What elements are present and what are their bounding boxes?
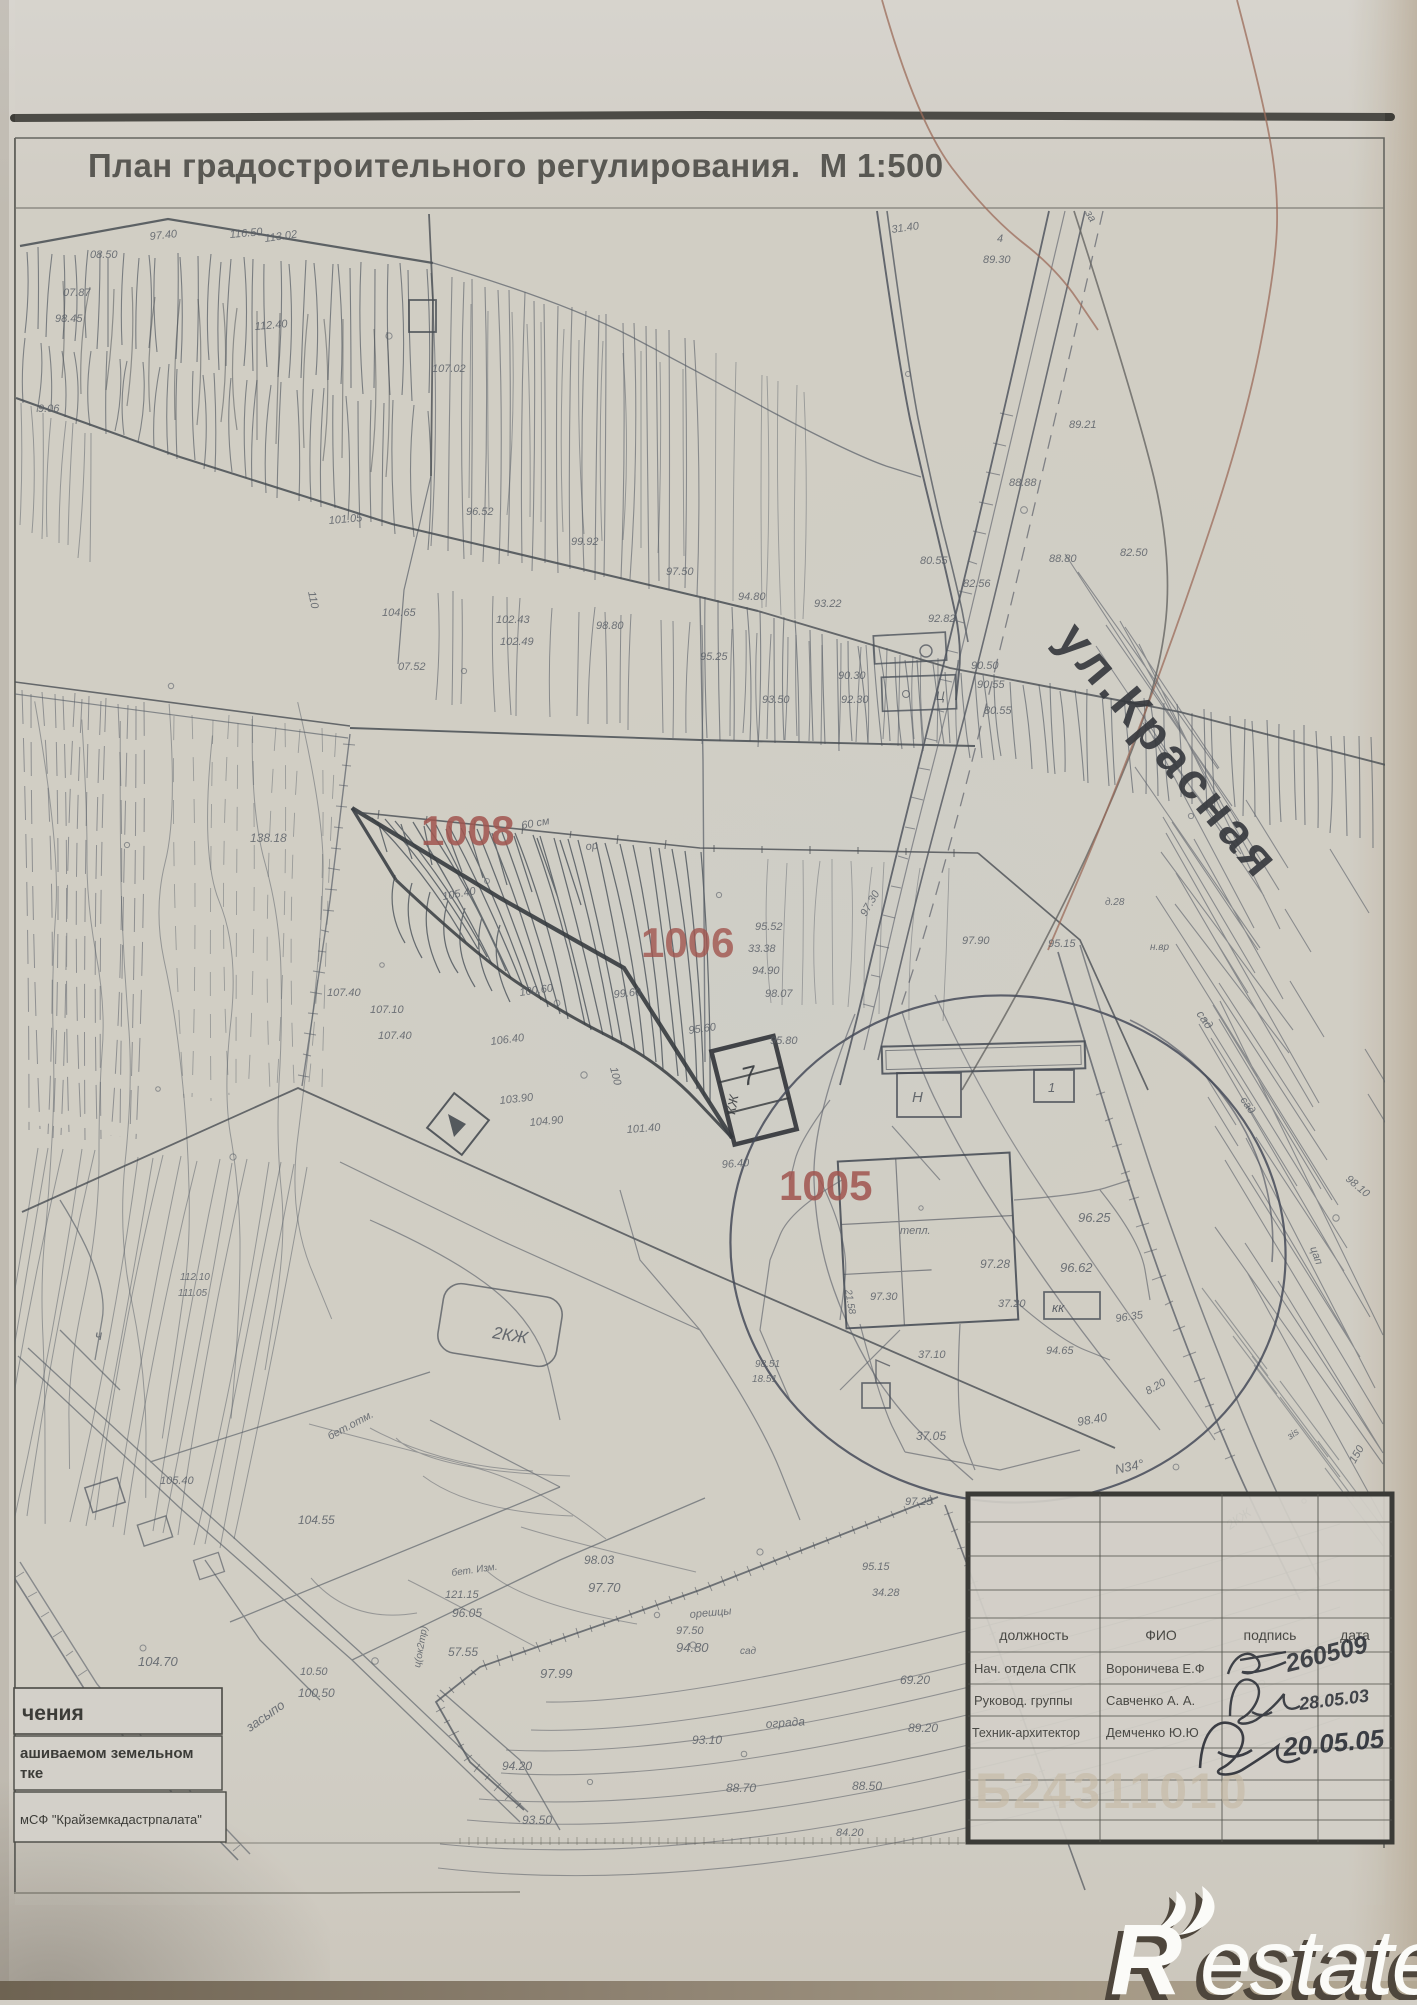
svg-text:Савченко А. А.: Савченко А. А.: [1106, 1693, 1195, 1708]
svg-text:подпись: подпись: [1244, 1627, 1297, 1643]
svg-text:ФИО: ФИО: [1145, 1627, 1177, 1643]
svg-text:Демченко Ю.Ю: Демченко Ю.Ю: [1106, 1725, 1199, 1740]
svg-text:R: R: [1110, 1904, 1182, 2000]
svg-text:тке: тке: [20, 1765, 43, 1782]
svg-text:ашиваемом земельном: ашиваемом земельном: [20, 1745, 193, 1762]
svg-text:чения: чения: [22, 1702, 84, 1725]
svg-text:Б24311010: Б24311010: [975, 1763, 1249, 1819]
svg-text:estate: estate: [1200, 1910, 1417, 2000]
svg-text:должность: должность: [999, 1627, 1068, 1643]
svg-text:мСФ "Крайземкадастрпалата": мСФ "Крайземкадастрпалата": [20, 1812, 202, 1827]
svg-text:Техник-архитектор: Техник-архитектор: [972, 1726, 1080, 1740]
svg-text:Руковод. группы: Руковод. группы: [974, 1693, 1073, 1708]
svg-text:Нач. отдела СПК: Нач. отдела СПК: [974, 1661, 1076, 1676]
svg-text:Вороничева Е.Ф: Вороничева Е.Ф: [1106, 1661, 1205, 1676]
